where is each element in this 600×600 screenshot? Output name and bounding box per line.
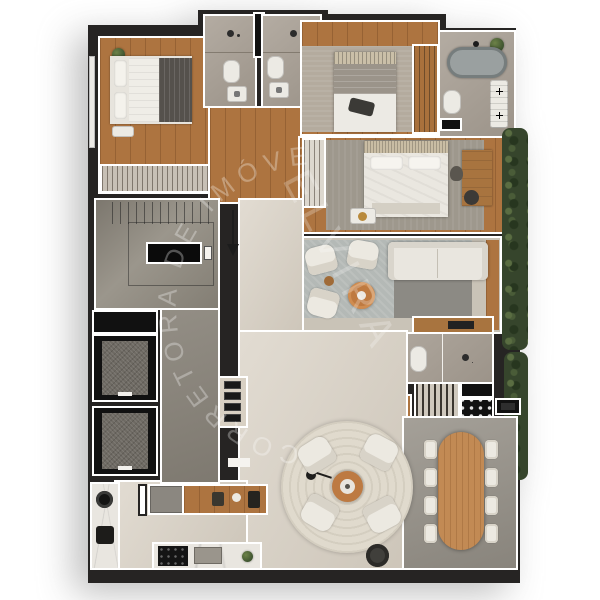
round-rug-dark	[464, 190, 479, 205]
sink-basin	[276, 87, 282, 93]
hallway-bedrooms	[210, 108, 302, 202]
bed-master	[364, 141, 448, 217]
dining-chair	[485, 496, 498, 515]
fridge	[150, 486, 184, 513]
stair-treads	[112, 202, 214, 224]
dining-chair	[485, 440, 498, 459]
gourmet-sink	[497, 400, 519, 413]
kitchen-counter-left	[92, 484, 118, 568]
technical-closet	[220, 378, 246, 426]
dining-chair	[424, 496, 437, 515]
counter-black	[462, 384, 492, 396]
electrical-panel	[224, 414, 241, 422]
tray	[357, 291, 366, 300]
coffee-machine	[248, 491, 260, 508]
elevator-door	[118, 392, 132, 396]
basin	[501, 403, 515, 410]
dining-chair	[424, 440, 437, 459]
pillow	[370, 156, 403, 170]
sofa-seam	[437, 249, 438, 278]
round-sink	[96, 491, 113, 508]
dining-chair	[485, 468, 498, 487]
toilet	[223, 60, 240, 83]
tub-faucet-icon	[473, 41, 479, 47]
side-table	[324, 276, 334, 286]
elevator-shaft	[94, 336, 156, 400]
wardrobe	[304, 140, 324, 206]
toilet	[443, 90, 461, 114]
duct-shaft	[255, 14, 263, 56]
wardrobe	[102, 166, 208, 191]
pillow	[114, 92, 127, 119]
planter-pot	[366, 544, 389, 567]
elevator-lobby	[162, 310, 218, 482]
electrical-panel	[224, 392, 241, 400]
small-appliance	[212, 492, 224, 506]
cooktop	[158, 546, 188, 566]
plant	[242, 551, 253, 562]
dining-chair	[424, 468, 437, 487]
shower-divider	[442, 334, 443, 382]
landing-marker	[204, 246, 212, 260]
desk-chair	[450, 166, 463, 181]
tray-table	[350, 208, 376, 224]
hedge-plants	[502, 128, 528, 350]
toilet	[267, 56, 284, 79]
blanket	[159, 58, 192, 122]
headboard	[364, 141, 448, 153]
elevator-door	[118, 466, 132, 470]
wardrobe	[414, 46, 437, 132]
gold-bowl	[358, 212, 367, 221]
decor	[345, 484, 350, 489]
coffee-table-round	[348, 282, 375, 309]
double-vanity	[490, 80, 508, 128]
island-sink	[194, 547, 222, 564]
bed-double	[334, 52, 396, 132]
shower-divider	[205, 52, 255, 53]
tv	[448, 321, 474, 329]
blanket	[334, 64, 396, 94]
duvet	[129, 58, 159, 122]
armchair	[346, 239, 380, 271]
elevator-shaft	[94, 408, 156, 474]
bathtub	[447, 47, 507, 78]
hallway-entry	[240, 200, 302, 340]
bath-mat	[442, 120, 460, 129]
pillow	[114, 60, 127, 87]
stove	[96, 526, 114, 544]
tv-sideboard	[414, 318, 492, 333]
stair-void	[148, 244, 200, 262]
cooktop	[462, 400, 492, 419]
toilet	[410, 346, 427, 372]
window	[89, 56, 95, 148]
kitchen-counter	[184, 486, 266, 513]
electrical-panel	[224, 381, 241, 389]
room-bathroom1	[205, 16, 255, 106]
elevator-cab	[102, 341, 148, 395]
elevator-cab	[102, 413, 148, 469]
dining-chair	[424, 524, 437, 543]
sink-basin	[234, 91, 240, 97]
dining-chair	[485, 524, 498, 543]
bench	[112, 126, 134, 137]
bed-single-frame	[110, 56, 192, 124]
barbecue-grill	[416, 384, 458, 418]
pillow	[408, 156, 441, 170]
faucet-icon	[496, 112, 503, 119]
dining-table	[438, 432, 484, 550]
shower-head-icon	[227, 30, 234, 37]
wall-stub	[138, 484, 147, 516]
sink-vanity	[227, 86, 247, 102]
headboard	[334, 52, 396, 64]
sink-vanity	[269, 82, 289, 98]
sofa	[388, 242, 488, 280]
floor-plan: CORRETORA DE IMÓVEIS ELVIRA	[0, 0, 600, 600]
faucet-icon	[496, 88, 503, 95]
shower-head-icon	[462, 354, 469, 361]
electrical-panel	[224, 403, 241, 411]
lounge-table	[332, 471, 363, 502]
kitchen-island	[154, 544, 260, 568]
shower-head-icon	[290, 30, 297, 37]
foot-throw	[372, 203, 440, 214]
down-arrow-icon	[224, 208, 242, 258]
stairwell	[96, 200, 218, 308]
service-shaft	[94, 312, 156, 332]
small-appliance	[232, 493, 241, 502]
entry-door-opening	[228, 458, 250, 467]
living-rug-dark	[394, 276, 472, 318]
